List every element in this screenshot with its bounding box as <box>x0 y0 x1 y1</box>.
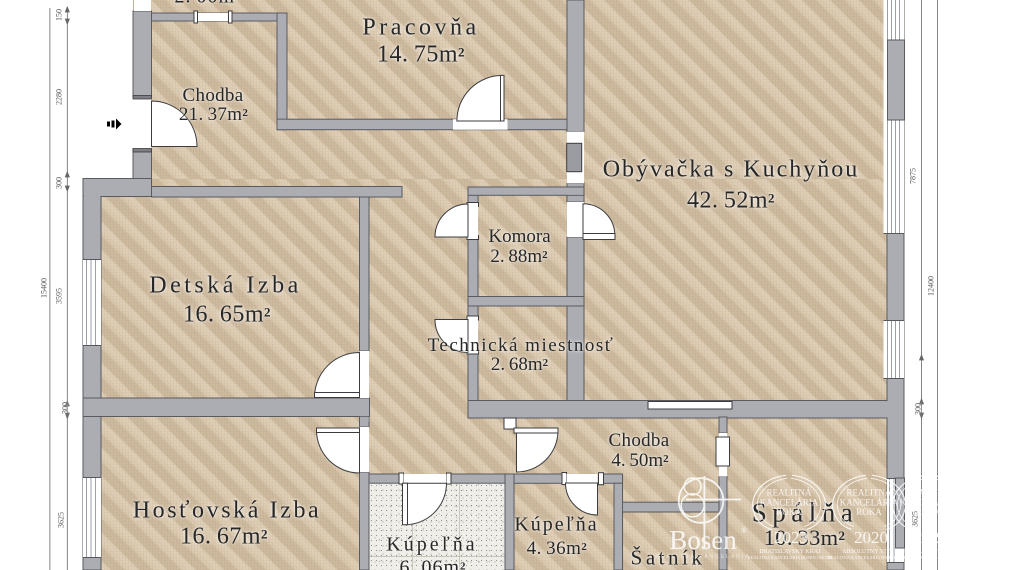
svg-text:REALITNA KANCELARIA BOSEN GROU: REALITNA KANCELARIA BOSEN GROUP <box>888 555 973 560</box>
svg-text:REALITNA KANCELARIA BOSEN GROU: REALITNA KANCELARIA BOSEN GROUP <box>748 555 833 560</box>
svg-text:REALITNÁ: REALITNÁ <box>847 488 892 498</box>
svg-text:KANCELÁRIA: KANCELÁRIA <box>840 498 899 508</box>
svg-text:REALITNA KANCELARIA: REALITNA KANCELARIA <box>655 554 750 560</box>
svg-text:2020: 2020 <box>854 528 888 547</box>
svg-text:ROKA: ROKA <box>916 507 942 517</box>
svg-text:2023: 2023 <box>774 528 808 547</box>
svg-text:Bosen: Bosen <box>669 525 737 555</box>
svg-text:BRATISLAVSKÝ KRAJ: BRATISLAVSKÝ KRAJ <box>760 547 821 555</box>
svg-text:REALITNÁ: REALITNÁ <box>767 488 812 498</box>
svg-text:ROKA: ROKA <box>856 507 882 517</box>
svg-text:®: ® <box>741 526 747 535</box>
svg-text:2020: 2020 <box>914 528 948 547</box>
svg-text:KANCELÁRIA: KANCELÁRIA <box>900 498 959 508</box>
svg-text:KANCELÁRIA: KANCELÁRIA <box>760 498 819 508</box>
svg-text:REALITNÁ: REALITNÁ <box>907 488 952 498</box>
svg-text:ROKA: ROKA <box>776 507 802 517</box>
svg-text:ABSOLÚTNY VÍŤAZ: ABSOLÚTNY VÍŤAZ <box>842 547 898 555</box>
svg-text:ABSOLÚTNY VÍŤAZ: ABSOLÚTNY VÍŤAZ <box>902 547 958 555</box>
